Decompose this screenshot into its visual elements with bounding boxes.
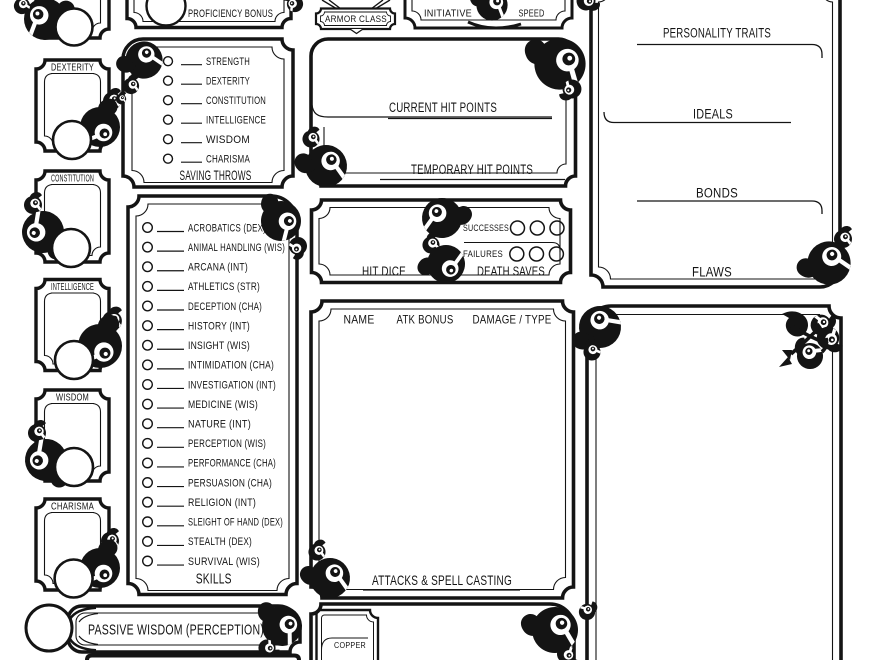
svg-text:WISDOM: WISDOM — [206, 134, 250, 146]
svg-text:INTELLIGENCE: INTELLIGENCE — [206, 115, 266, 127]
svg-text:SUCCESSES: SUCCESSES — [463, 223, 509, 234]
svg-text:DEXTERITY: DEXTERITY — [51, 62, 94, 74]
svg-text:FAILURES: FAILURES — [463, 249, 503, 260]
svg-text:ATTACKS & SPELL CASTING: ATTACKS & SPELL CASTING — [372, 572, 512, 588]
svg-text:NATURE (INT): NATURE (INT) — [188, 419, 251, 431]
svg-text:INTELLIGENCE: INTELLIGENCE — [51, 281, 94, 293]
svg-text:CONSTITUTION: CONSTITUTION — [206, 95, 266, 107]
svg-text:INVESTIGATION (INT): INVESTIGATION (INT) — [188, 379, 276, 391]
svg-text:RELIGION (INT): RELIGION (INT) — [188, 497, 256, 509]
svg-text:BONDS: BONDS — [696, 186, 738, 201]
svg-text:PROFICIENCY BONUS: PROFICIENCY BONUS — [188, 8, 273, 20]
svg-text:COPPER: COPPER — [334, 641, 366, 650]
svg-text:DEATH SAVES: DEATH SAVES — [477, 264, 545, 279]
svg-text:SKILLS: SKILLS — [196, 571, 232, 588]
svg-text:DEXTERITY: DEXTERITY — [206, 76, 250, 88]
svg-text:WISDOM: WISDOM — [56, 392, 89, 404]
svg-text:PASSIVE WISDOM (PERCEPTION): PASSIVE WISDOM (PERCEPTION) — [88, 623, 264, 639]
svg-text:CONSTITUTION: CONSTITUTION — [51, 173, 94, 185]
svg-text:CURRENT HIT POINTS: CURRENT HIT POINTS — [389, 100, 497, 115]
svg-text:CHARISMA: CHARISMA — [51, 501, 94, 513]
svg-text:INSIGHT (WIS): INSIGHT (WIS) — [188, 340, 250, 352]
svg-text:STEALTH (DEX): STEALTH (DEX) — [188, 536, 252, 548]
svg-text:DECEPTION (CHA): DECEPTION (CHA) — [188, 301, 262, 313]
svg-text:PERFORMANCE (CHA): PERFORMANCE (CHA) — [188, 458, 276, 470]
svg-text:SAVING THROWS: SAVING THROWS — [180, 167, 252, 183]
svg-text:PERSONALITY TRAITS: PERSONALITY TRAITS — [663, 26, 771, 41]
svg-text:HIT DICE: HIT DICE — [362, 264, 406, 279]
svg-text:MEDICINE (WIS): MEDICINE (WIS) — [188, 399, 258, 411]
svg-text:STRENGTH: STRENGTH — [206, 56, 250, 68]
svg-text:ARCANA (INT): ARCANA (INT) — [188, 262, 248, 274]
svg-text:ATHLETICS (STR): ATHLETICS (STR) — [188, 281, 260, 293]
svg-text:NAME: NAME — [344, 313, 375, 327]
svg-text:HISTORY (INT): HISTORY (INT) — [188, 320, 250, 332]
svg-text:TEMPORARY HIT POINTS: TEMPORARY HIT POINTS — [411, 162, 533, 177]
svg-text:PERCEPTION (WIS): PERCEPTION (WIS) — [188, 438, 266, 450]
svg-text:INITIATIVE: INITIATIVE — [424, 8, 472, 20]
svg-text:CHARISMA: CHARISMA — [206, 154, 250, 166]
svg-text:ANIMAL HANDLING (WIS): ANIMAL HANDLING (WIS) — [188, 242, 285, 254]
svg-text:SPEED: SPEED — [519, 8, 545, 20]
svg-text:INTIMIDATION (CHA): INTIMIDATION (CHA) — [188, 360, 274, 372]
svg-text:ARMOR CLASS: ARMOR CLASS — [325, 14, 387, 25]
svg-text:FLAWS: FLAWS — [692, 265, 732, 280]
svg-text:IDEALS: IDEALS — [693, 107, 733, 122]
svg-text:PERSUASION (CHA): PERSUASION (CHA) — [188, 477, 272, 489]
svg-text:ATK BONUS: ATK BONUS — [397, 313, 454, 327]
svg-text:ACROBATICS (DEX): ACROBATICS (DEX) — [188, 222, 266, 234]
svg-text:SLEIGHT OF HAND (DEX): SLEIGHT OF HAND (DEX) — [188, 517, 283, 529]
svg-text:DAMAGE / TYPE: DAMAGE / TYPE — [473, 313, 552, 327]
svg-text:SURVIVAL (WIS): SURVIVAL (WIS) — [188, 556, 260, 568]
